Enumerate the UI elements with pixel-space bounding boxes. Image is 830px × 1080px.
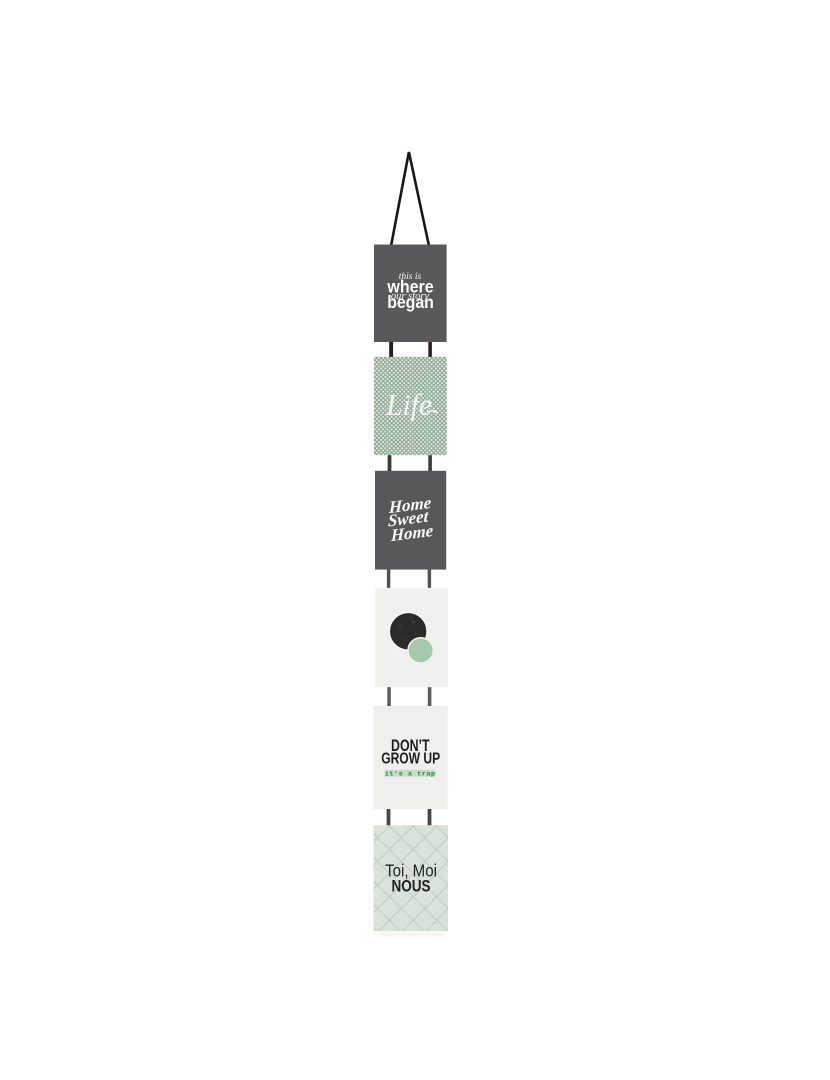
svg-text:NOUS: NOUS (391, 877, 430, 896)
svg-text:began: began (387, 292, 434, 312)
svg-text:it’s a trap: it’s a trap (385, 771, 436, 779)
svg-text:GROW UP: GROW UP (381, 749, 440, 767)
svg-text:Life: Life (385, 387, 432, 422)
